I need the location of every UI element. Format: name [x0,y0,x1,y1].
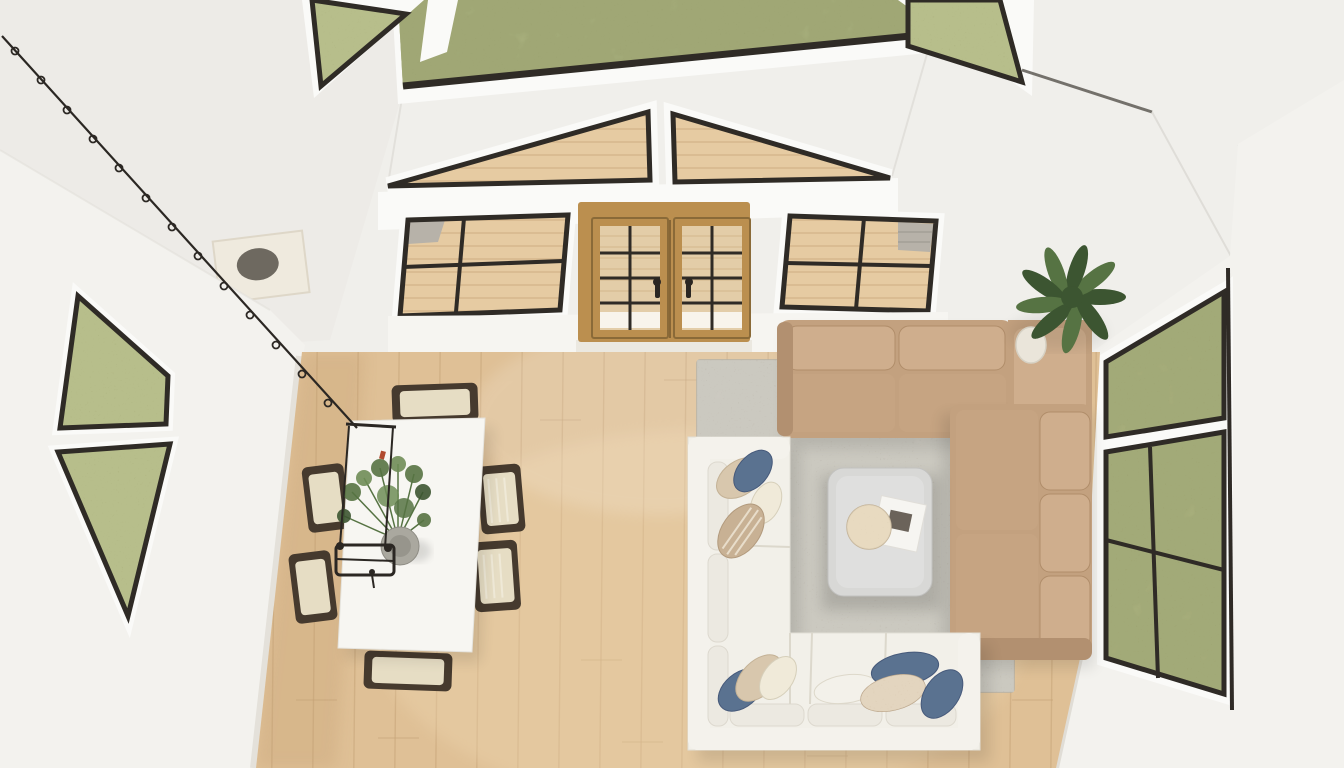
armrest [688,437,710,750]
armrest [688,728,980,750]
screenshot-stage [0,0,1344,768]
stone-pillar-view [898,222,934,252]
armrest [688,437,790,459]
room-rendering [0,0,1344,768]
french-doors [576,202,752,354]
back-cushion [1040,494,1090,572]
dining-chair-left-2 [288,550,338,625]
plate-texture [847,505,891,549]
back-cushion [1040,576,1090,648]
back-cushion [787,326,895,370]
seat-cushion [956,410,1038,530]
right-window-lower [1106,432,1224,694]
armrest [777,322,793,436]
back-cushion [899,326,1005,370]
tufted-ottoman [822,468,940,610]
seat-cushion [785,374,895,432]
door-threshold [576,340,752,354]
dining-chair-top [391,383,478,424]
back-cushion [1040,412,1090,490]
